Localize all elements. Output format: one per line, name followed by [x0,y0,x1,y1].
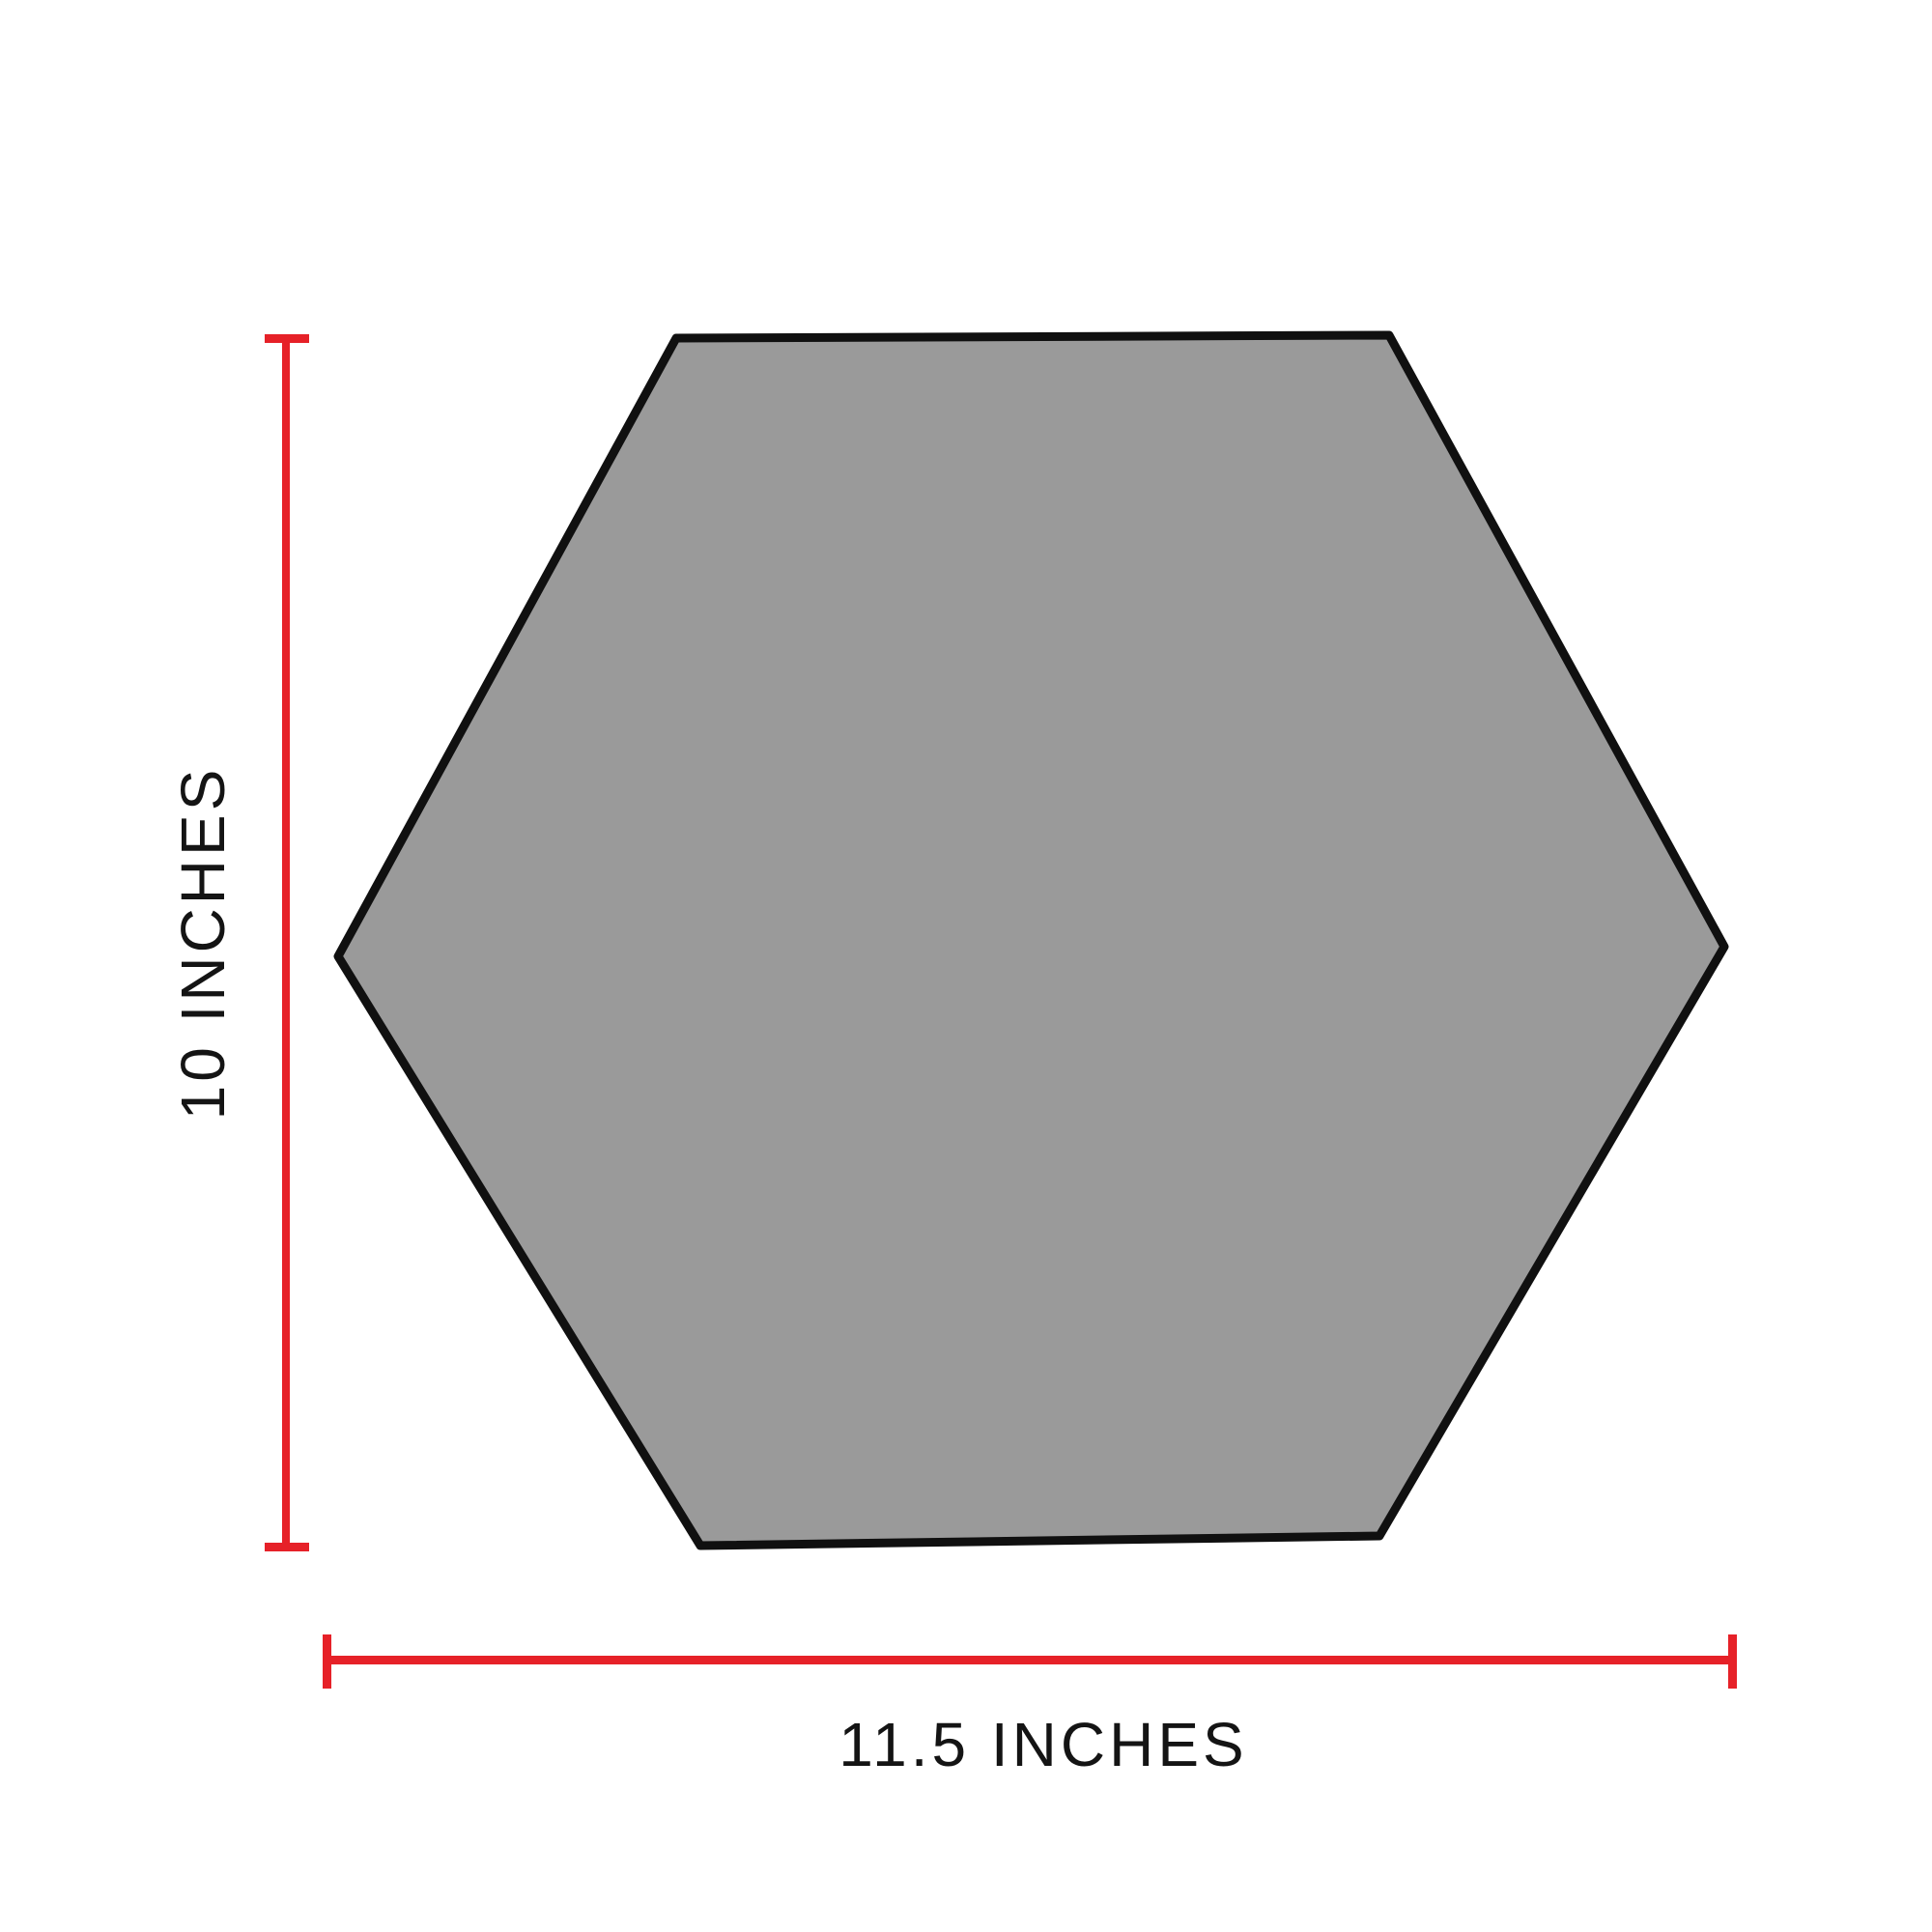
height-dimension-cap-bottom [265,1543,309,1551]
width-dimension-cap-right [1728,1634,1737,1689]
diagram-canvas: 10 INCHES 11.5 INCHES [0,0,1932,1932]
width-dimension-label: 11.5 INCHES [838,1709,1247,1780]
width-dimension-line [326,1656,1732,1664]
height-dimension-label: 10 INCHES [167,766,239,1121]
width-dimension-cap-left [323,1634,331,1689]
hexagon-figure [0,0,1932,1932]
height-dimension-line [282,337,290,1548]
hexagon-shape [338,335,1724,1546]
height-dimension-cap-top [265,334,309,343]
